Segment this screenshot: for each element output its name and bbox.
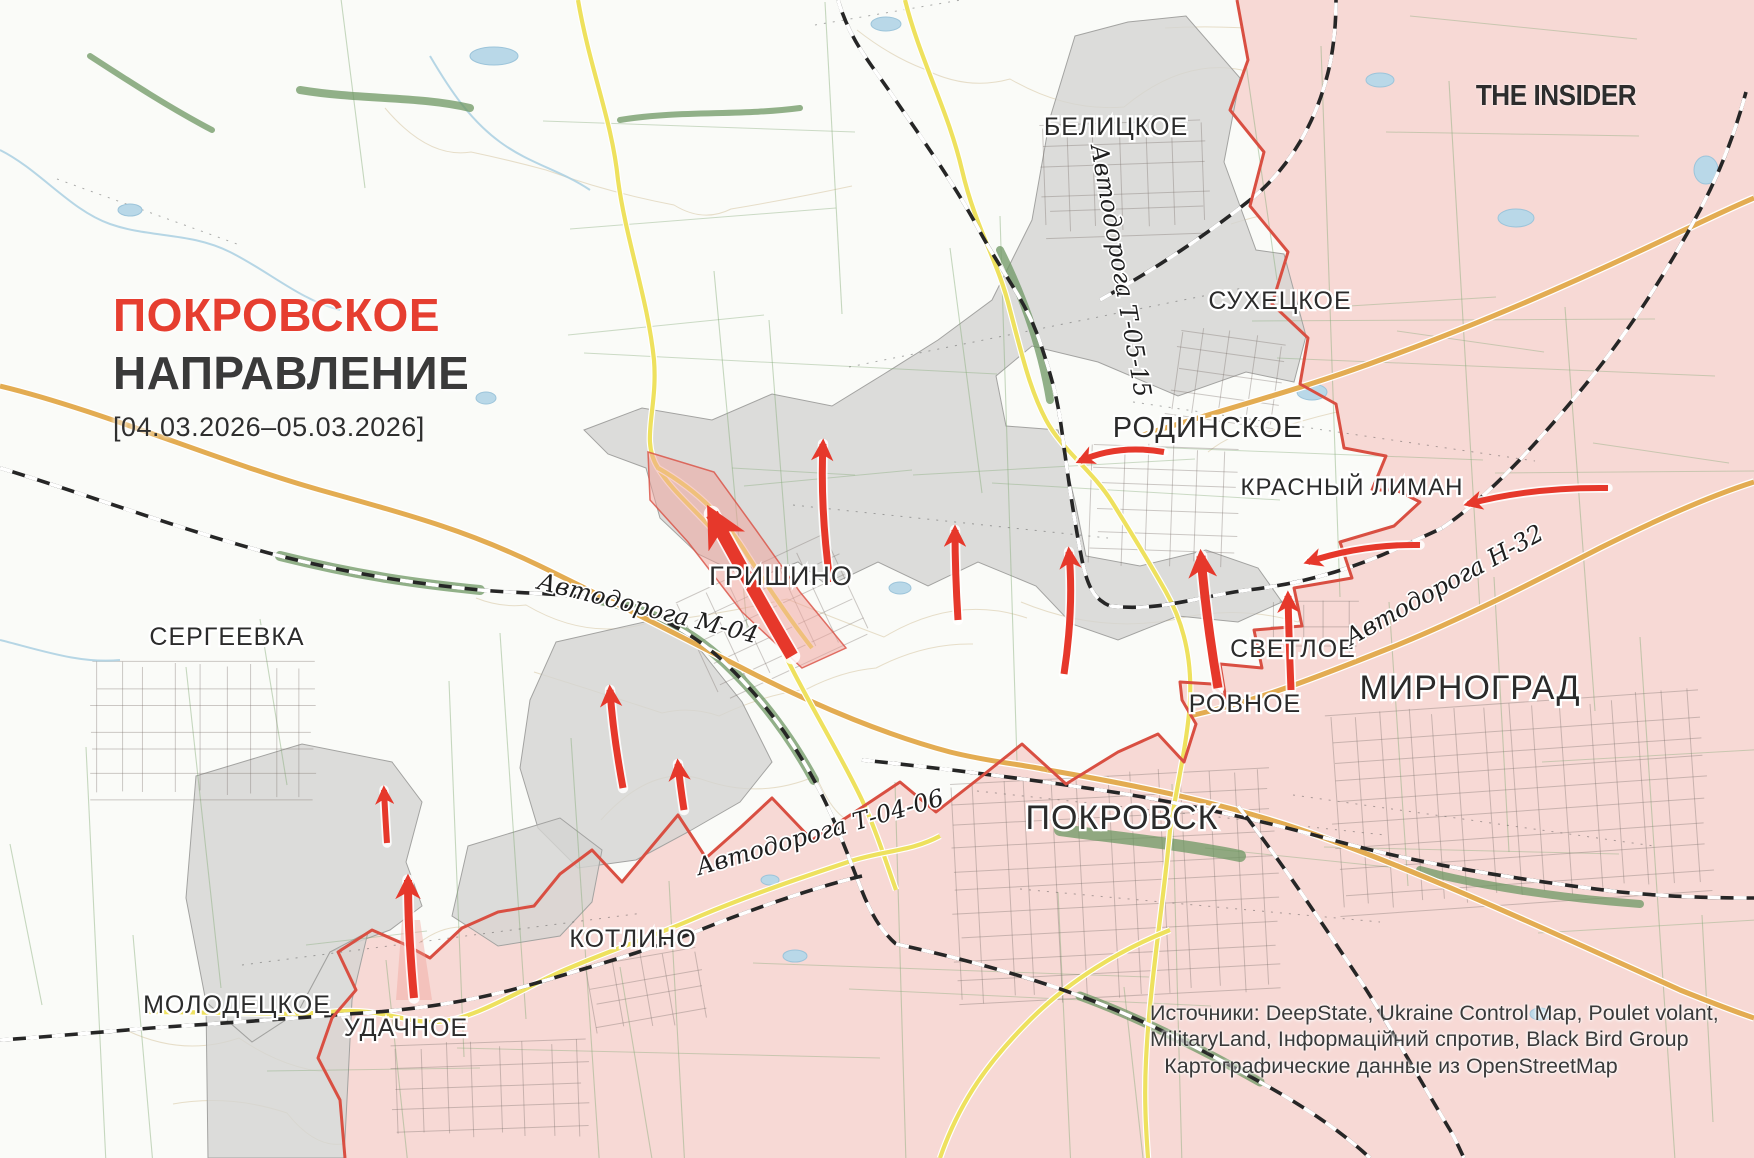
map-canvas: БЕЛИЦКОЕСУХЕЦКОЕРОДИНСКОЕКРАСНЫЙ ЛИМАНГР… xyxy=(0,0,1754,1158)
pond xyxy=(871,17,901,31)
pond xyxy=(476,392,496,404)
sources-line-2: MilitaryLand, Інформаційний спротив, Bla… xyxy=(1150,1026,1632,1052)
brand-logo: THE INSIDER xyxy=(1476,80,1636,113)
map-svg: БЕЛИЦКОЕСУХЕЦКОЕРОДИНСКОЕКРАСНЫЙ ЛИМАНГР… xyxy=(0,0,1754,1158)
pond xyxy=(1366,73,1394,87)
map-title: ПОКРОВСКОЕ xyxy=(113,288,440,342)
date-range: [04.03.2026–05.03.2026] xyxy=(113,412,425,443)
settlement-label: ПОКРОВСК xyxy=(1026,799,1219,837)
settlement-label: УДАЧНОЕ xyxy=(344,1014,468,1042)
settlement-label: КРАСНЫЙ ЛИМАН xyxy=(1240,473,1463,501)
settlement-label: СВЕТЛОЕ xyxy=(1230,635,1356,663)
attack-arrow xyxy=(384,790,387,843)
map-title-direction: НАПРАВЛЕНИЕ xyxy=(113,346,469,400)
pond xyxy=(118,204,142,216)
pond xyxy=(1498,209,1534,227)
settlement-label: МИРНОГРАД xyxy=(1359,669,1580,707)
settlement-label: СУХЕЦКОЕ xyxy=(1208,287,1351,315)
pond xyxy=(783,950,807,962)
sources-line-3: Картографические данные из OpenStreetMap xyxy=(1150,1053,1632,1079)
settlement-label: ГРИШИНО xyxy=(709,561,853,591)
pond xyxy=(889,582,911,594)
settlement-label: БЕЛИЦКОЕ xyxy=(1044,113,1188,141)
sources-note: Источники: DeepState, Ukraine Control Ma… xyxy=(1150,1000,1632,1079)
settlement-label: СЕРГЕЕВКА xyxy=(149,623,304,651)
sources-line-1: Источники: DeepState, Ukraine Control Ma… xyxy=(1150,1000,1632,1026)
settlement-label: РОВНОЕ xyxy=(1189,690,1301,718)
attack-arrow xyxy=(955,530,958,620)
settlement-label: МОЛОДЕЦКОЕ xyxy=(143,991,331,1019)
settlement-label: КОТЛИНО xyxy=(569,925,696,953)
settlement-label: РОДИНСКОЕ xyxy=(1113,412,1303,444)
pond xyxy=(470,47,518,65)
